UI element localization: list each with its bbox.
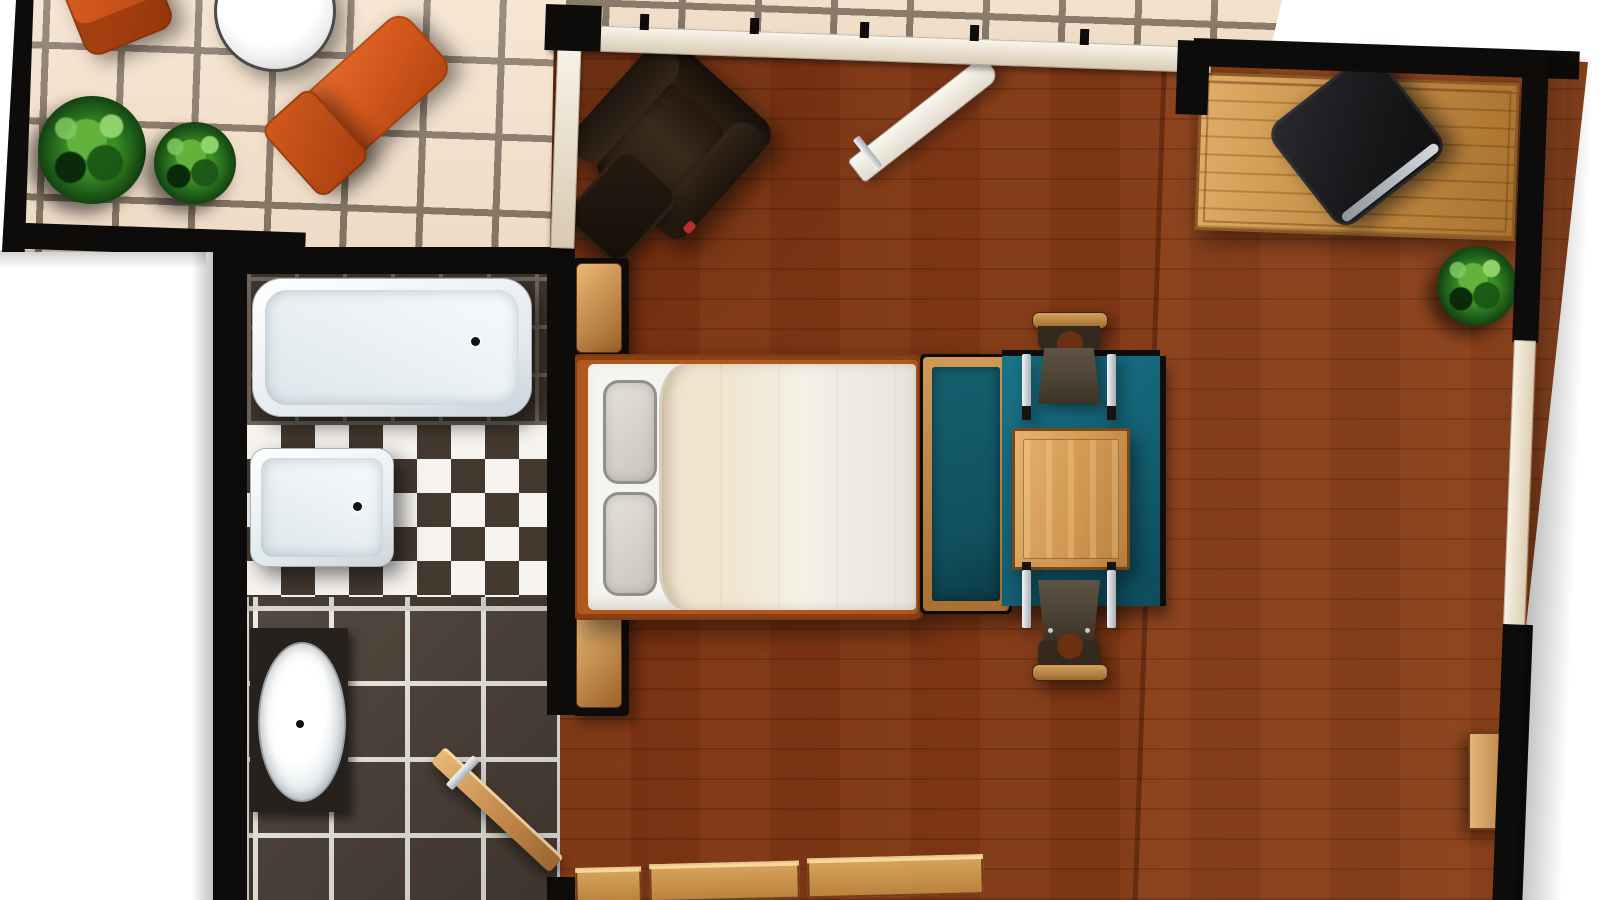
divider-wall-upper — [547, 274, 575, 715]
bathtub-drain — [471, 337, 480, 346]
sink-counter — [250, 628, 348, 812]
shower-drain — [353, 502, 362, 511]
exterior-shadow-south-terrace — [0, 250, 206, 268]
railing-post — [750, 18, 760, 34]
washbasin — [258, 642, 346, 802]
bathroom-wall-west — [213, 274, 247, 900]
room-bathroom — [0, 0, 1600, 900]
washbasin-drain — [296, 720, 304, 728]
shower-basin — [261, 458, 383, 557]
bathroom-wall-north — [213, 247, 575, 274]
railing-post — [640, 14, 650, 30]
bathtub-basin — [265, 290, 519, 405]
wall-corner-northwest — [544, 4, 602, 52]
divider-wall-lower — [547, 877, 575, 900]
railing-post — [970, 25, 980, 41]
railing-post — [860, 22, 870, 38]
bathtub — [252, 278, 532, 417]
shower-tray — [250, 448, 394, 567]
floor-plan-canvas — [0, 0, 1600, 900]
exterior-shadow-west — [191, 252, 213, 900]
railing-post — [1080, 29, 1090, 45]
